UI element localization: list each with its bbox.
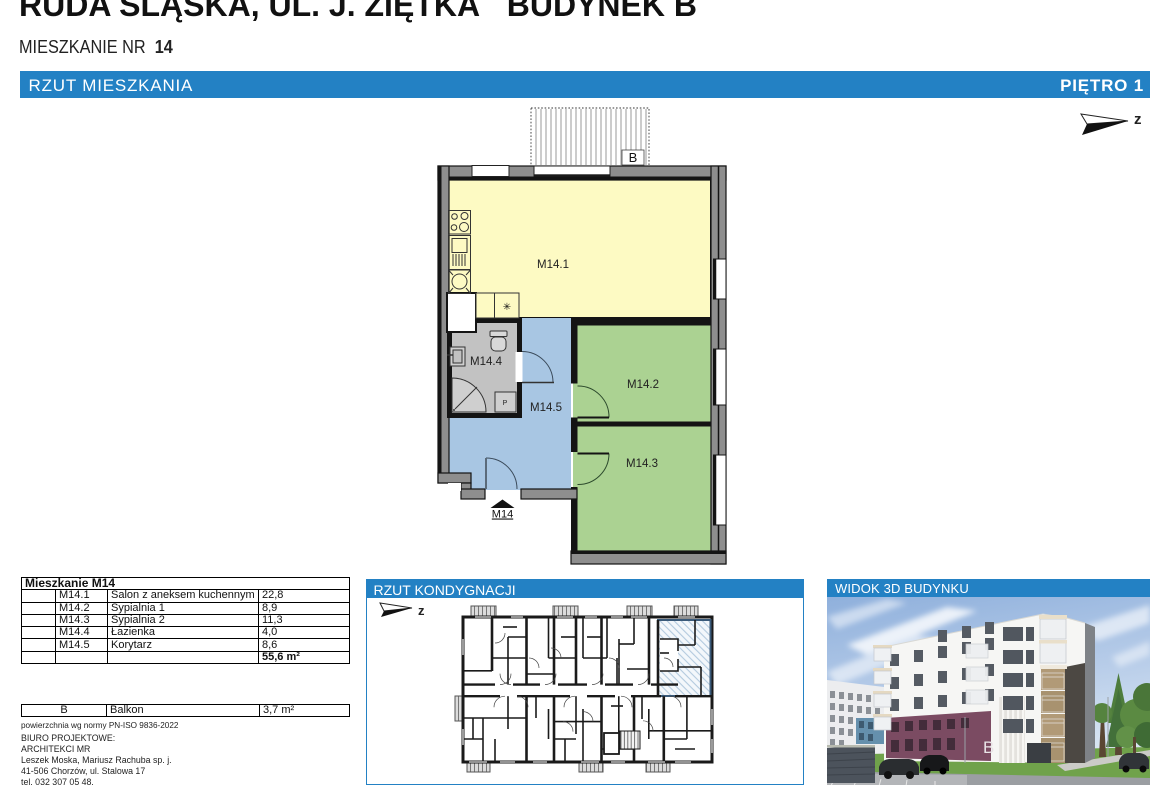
svg-text:P: P <box>503 400 508 407</box>
svg-text:M14.5: M14.5 <box>530 402 562 414</box>
svg-text:M14.4: M14.4 <box>470 356 503 368</box>
svg-text:✳: ✳ <box>503 302 511 313</box>
svg-text:M14: M14 <box>492 509 513 521</box>
svg-text:M14.3: M14.3 <box>626 458 658 470</box>
svg-text:B: B <box>629 150 638 165</box>
svg-text:B: B <box>983 738 994 757</box>
svg-text:M14.2: M14.2 <box>627 379 659 391</box>
svg-text:M14.1: M14.1 <box>537 259 569 271</box>
svg-text:z: z <box>1134 111 1142 128</box>
